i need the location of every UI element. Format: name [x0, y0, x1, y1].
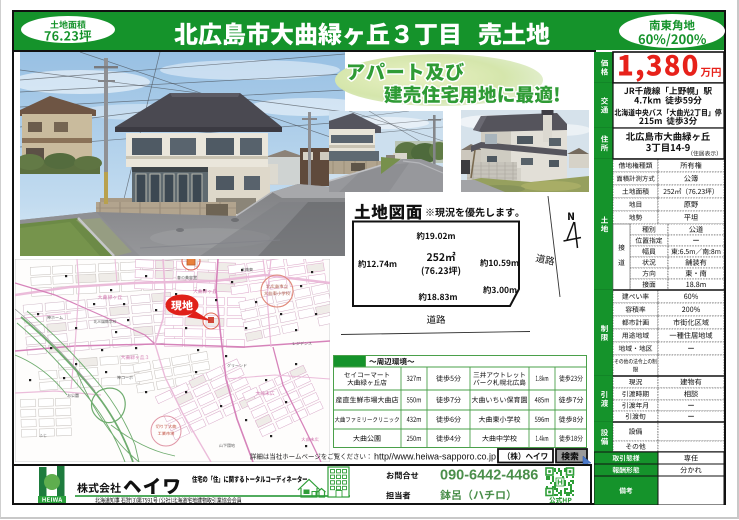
svg-text:http//www.heiwa-sapporo.co.jp: http//www.heiwa-sapporo.co.jp	[374, 452, 496, 462]
svg-text:090-6442-4486: 090-6442-4486	[440, 468, 538, 484]
